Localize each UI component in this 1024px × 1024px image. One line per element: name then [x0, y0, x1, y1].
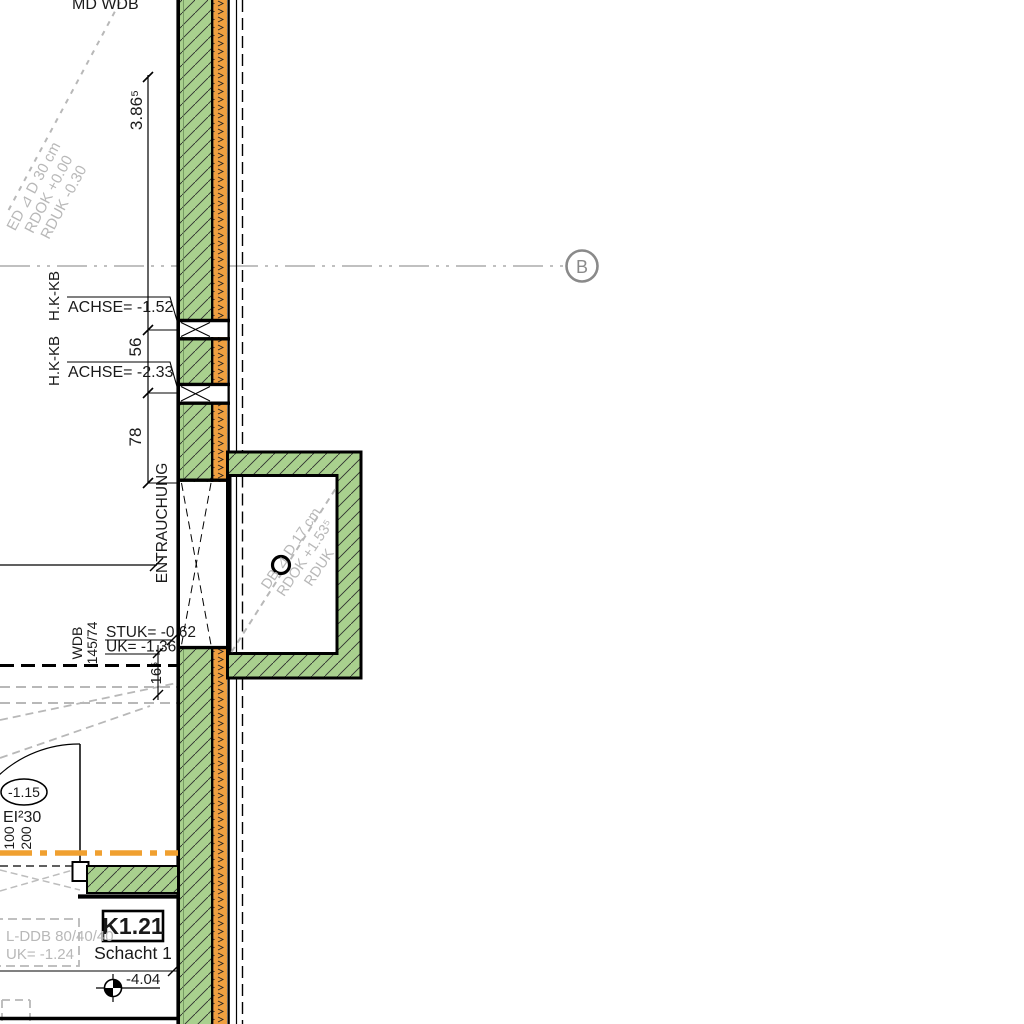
wdb-size: 145/74: [84, 621, 100, 664]
door-width: 100: [1, 826, 17, 850]
dim-386: 3.86⁵: [127, 90, 146, 130]
door-fire-rating: EI²30: [3, 809, 41, 826]
hk1-tag: H.K-KB: [46, 271, 63, 321]
wall-opening-hk2: [177, 384, 231, 403]
wall-opening-hk1: [177, 321, 231, 339]
bottom-wall-stub: [78, 866, 180, 897]
level-bottom-value: -4.04: [126, 971, 160, 988]
dim-78: 78: [126, 428, 145, 447]
door-height: 200: [18, 826, 34, 850]
hk1-text: ACHSE= -1.52: [68, 299, 173, 316]
hk2-text: ACHSE= -2.33: [68, 364, 173, 381]
grid-bubble-label: B: [576, 257, 588, 277]
room-name: Schacht 1: [94, 943, 172, 963]
wall-opening-entrauchung: [177, 480, 231, 647]
door-level: -1.15: [8, 784, 40, 800]
hk2-tag: H.K-KB: [46, 336, 63, 386]
floor-plan-canvas: ED ⊿ D 30 cm RDOK +0.00 RDUK -0.30: [0, 0, 1024, 1024]
grid-bubble-b: B: [567, 251, 598, 282]
wdb-tag: WDB: [69, 627, 85, 660]
top-wall-label: MD WDB: [72, 0, 139, 13]
lddb-line1: L-DDB 80/40/40: [6, 928, 114, 945]
wdb-uk: UK= -1.36: [106, 639, 176, 656]
shaft-box: DB ⊿ D 17 cm RDOK +1.53⁵ RDUK: [228, 452, 362, 678]
dim-56: 56: [126, 338, 145, 357]
lddb-line2: UK= -1.24: [6, 946, 74, 963]
